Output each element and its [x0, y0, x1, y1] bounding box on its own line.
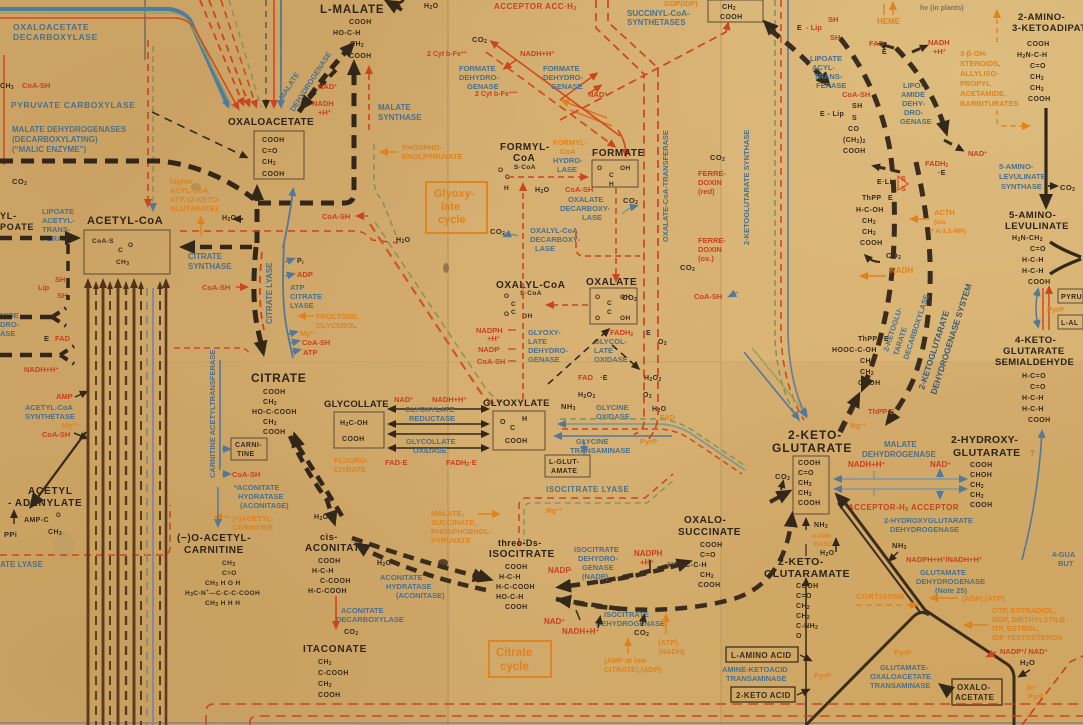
svg-text:FAD·E: FAD·E: [385, 458, 408, 467]
svg-text:AMIDE: AMIDE: [901, 90, 925, 99]
svg-text:higher: higher: [170, 177, 193, 186]
svg-text:H-C-H: H-C-H: [1022, 268, 1044, 275]
svg-text:GENASE: GENASE: [551, 82, 583, 91]
svg-text:CH2: CH2: [798, 480, 812, 488]
svg-text:cycle: cycle: [438, 214, 466, 226]
svg-text:SH: SH: [55, 275, 65, 284]
svg-text:GLUTAMATE-: GLUTAMATE-: [880, 663, 929, 672]
svg-text:DEHYDROGENASE: DEHYDROGENASE: [890, 525, 959, 534]
svg-text:GLYOXYLATE: GLYOXYLATE: [405, 405, 455, 414]
svg-text:O2: O2: [658, 339, 667, 347]
svg-text:CO: CO: [848, 126, 859, 133]
svg-text:COOH: COOH: [970, 502, 993, 509]
svg-text:CH2: CH2: [262, 159, 276, 167]
svg-text:C: C: [607, 300, 612, 307]
svg-text:CH2: CH2: [1030, 74, 1044, 82]
svg-text:C-NH2: C-NH2: [796, 623, 818, 631]
svg-text:CoA-SH: CoA-SH: [322, 212, 350, 221]
svg-text:α-AMI-: α-AMI-: [812, 533, 832, 540]
svg-text:FAD: FAD: [55, 334, 71, 343]
svg-text:COOH: COOH: [970, 462, 993, 469]
svg-text:C=O: C=O: [262, 148, 278, 155]
svg-text:GENASE: GENASE: [900, 117, 932, 126]
svg-text:DRO-: DRO-: [904, 108, 924, 117]
svg-text:SYNTHASE: SYNTHASE: [188, 262, 232, 271]
svg-text:CARNITINE ACETYLTRANSFERASE: CARNITINE ACETYLTRANSFERASE: [208, 350, 217, 478]
svg-text:L-GLUT-: L-GLUT-: [549, 459, 580, 466]
svg-text:2-KETOGLUTARATE SYNTHASE: 2-KETOGLUTARATE SYNTHASE: [742, 130, 751, 245]
svg-text:E: E: [797, 25, 802, 32]
svg-text:C: C: [511, 301, 516, 308]
svg-text:GLYCOL-: GLYCOL-: [594, 337, 628, 346]
svg-text:hν (in plants): hν (in plants): [920, 5, 964, 12]
svg-text:TRANSAMINASE: TRANSAMINASE: [870, 681, 930, 690]
svg-text:SUCCINATE: SUCCINATE: [678, 527, 741, 538]
svg-text:late: late: [441, 201, 460, 213]
svg-text:HYDRO-: HYDRO-: [553, 156, 583, 165]
svg-text:NADH: NADH: [312, 99, 334, 108]
svg-text:H2O: H2O: [424, 3, 439, 11]
svg-text:COOH: COOH: [858, 380, 881, 387]
svg-text:Citrate: Citrate: [496, 647, 532, 659]
svg-text:OXALATE-CoA-TRANSFERASE: OXALATE-CoA-TRANSFERASE: [661, 130, 670, 242]
svg-text:COOH: COOH: [262, 171, 285, 178]
svg-text:DOXIN: DOXIN: [698, 178, 722, 187]
svg-text:H2O: H2O: [820, 550, 835, 558]
svg-text:cycle: cycle: [500, 661, 529, 673]
svg-text:COOH: COOH: [796, 583, 819, 590]
svg-text:PyrP: PyrP: [894, 648, 911, 657]
svg-text:FERRE-: FERRE-: [698, 169, 726, 178]
svg-text:BARBITURATES: BARBITURATES: [960, 99, 1019, 108]
svg-text:CoA-SH: CoA-SH: [565, 185, 593, 194]
svg-text:L-AL: L-AL: [1061, 320, 1079, 327]
svg-text:LIPO-: LIPO-: [903, 81, 924, 90]
svg-text:- Lip: - Lip: [806, 23, 822, 32]
svg-text:ASE: ASE: [0, 329, 15, 338]
svg-text:ACONITATE: ACONITATE: [341, 606, 384, 615]
svg-text:2-HYDROXY-: 2-HYDROXY-: [951, 434, 1018, 446]
svg-text:E - Lip: E - Lip: [820, 111, 844, 118]
svg-text:GDP(IDP): GDP(IDP): [664, 0, 698, 8]
svg-text:PYRUVATE: PYRUVATE: [431, 536, 471, 545]
svg-text:ENOLPYRUVATE: ENOLPYRUVATE: [402, 152, 463, 161]
svg-text:ThPP·E: ThPP·E: [868, 407, 895, 416]
svg-text:CH3: CH3: [0, 83, 14, 91]
svg-text:COOH: COOH: [1027, 41, 1050, 48]
svg-text:H2O: H2O: [396, 237, 411, 245]
svg-text:FAD: FAD: [869, 39, 885, 48]
svg-text:AMINE-KETOACID: AMINE-KETOACID: [722, 665, 788, 674]
svg-text:DECARBOXY-: DECARBOXY-: [530, 235, 581, 244]
svg-text:(“MALIC ENZYME”): (“MALIC ENZYME”): [12, 145, 87, 154]
svg-text:(NADP): (NADP): [582, 572, 609, 581]
svg-text:4-KETO-: 4-KETO-: [1015, 335, 1056, 346]
svg-text:AMATE: AMATE: [551, 468, 577, 475]
svg-text:GLUTARATE): GLUTARATE): [170, 204, 218, 213]
svg-text:DEHYDROGENASE: DEHYDROGENASE: [596, 619, 665, 628]
svg-text:LIPOATE: LIPOATE: [42, 207, 74, 216]
svg-text:O: O: [595, 315, 600, 322]
svg-text:CH2: CH2: [263, 399, 277, 407]
svg-text:OXALATE: OXALATE: [586, 277, 637, 288]
svg-text:PPi: PPi: [4, 530, 17, 539]
svg-text:CoA-SH: CoA-SH: [842, 90, 870, 99]
svg-text:cis-: cis-: [320, 532, 338, 542]
svg-text:NADH+H+: NADH+H+: [848, 460, 885, 469]
svg-text:(ox.): (ox.): [698, 254, 714, 263]
svg-text:COOH: COOH: [860, 240, 883, 247]
svg-text:COOH: COOH: [843, 148, 866, 155]
svg-text:2-HYDROXYGLUTARATE: 2-HYDROXYGLUTARATE: [884, 516, 973, 525]
svg-text:(via: (via: [934, 219, 946, 226]
svg-text:LATE: LATE: [594, 346, 613, 355]
svg-text:(AMP at low: (AMP at low: [604, 656, 647, 665]
svg-text:H2N-CH2: H2N-CH2: [1012, 235, 1043, 243]
svg-text:DEHY-: DEHY-: [902, 99, 925, 108]
svg-text:COOH: COOH: [700, 542, 723, 549]
svg-text:COOH: COOH: [1028, 96, 1051, 103]
svg-text:CoA-SH: CoA-SH: [477, 357, 505, 366]
svg-text:CH2: CH2: [798, 490, 812, 498]
svg-text:O: O: [597, 165, 602, 172]
svg-text:(CH2)2: (CH2)2: [843, 137, 866, 145]
svg-text:NADH+H+: NADH+H+: [432, 395, 466, 404]
svg-text:(DECARBOXYLATING): (DECARBOXYLATING): [12, 135, 98, 144]
svg-text:SH: SH: [828, 15, 838, 24]
svg-text:FADH2·E: FADH2·E: [446, 458, 477, 468]
svg-text:*ACONITATE: *ACONITATE: [234, 483, 280, 492]
svg-text:CoA: CoA: [513, 153, 535, 164]
svg-text:3-KETOADIPAT: 3-KETOADIPAT: [1012, 23, 1083, 34]
svg-text:COOH: COOH: [505, 438, 528, 445]
svg-text:DEHYDRO-: DEHYDRO-: [543, 73, 584, 82]
svg-text:ACETAMIDE,: ACETAMIDE,: [960, 89, 1006, 98]
svg-text:CoA-SH: CoA-SH: [694, 292, 722, 301]
svg-text:DEHYDRO-: DEHYDRO-: [528, 346, 569, 355]
svg-text:CH2: CH2: [970, 482, 984, 490]
svg-text:NADH: NADH: [890, 266, 913, 275]
svg-text:ACONITATE: ACONITATE: [305, 543, 367, 554]
svg-text:COOH: COOH: [505, 604, 528, 611]
svg-text:YL-: YL-: [0, 211, 17, 221]
svg-text:O: O: [498, 167, 503, 174]
svg-text:COOH: COOH: [318, 558, 341, 565]
svg-text:2-KETO ACID: 2-KETO ACID: [736, 691, 791, 700]
svg-text:AMP: AMP: [56, 392, 73, 401]
svg-text:GLYCINE: GLYCINE: [596, 403, 629, 412]
svg-text:C=O: C=O: [796, 593, 812, 600]
svg-text:COOH: COOH: [798, 500, 821, 507]
svg-text:OH: OH: [620, 165, 631, 172]
svg-text:3-β-OH-: 3-β-OH-: [960, 49, 988, 58]
svg-text:OXIDASE: OXIDASE: [594, 355, 628, 364]
svg-text:ACCEPTOR-H2 ACCEPTOR: ACCEPTOR-H2 ACCEPTOR: [848, 503, 959, 513]
svg-text:NADP+/ NAD+: NADP+/ NAD+: [1000, 647, 1048, 656]
svg-text:ACONITATE: ACONITATE: [380, 573, 423, 582]
svg-text:OXALOACETATE: OXALOACETATE: [13, 22, 89, 32]
svg-text:O: O: [128, 242, 133, 249]
svg-text:CoA: CoA: [560, 147, 576, 156]
svg-text:SEMIALDEHYDE: SEMIALDEHYDE: [995, 357, 1074, 368]
svg-text:TRANS-: TRANS-: [42, 225, 71, 234]
svg-text:C-COOH: C-COOH: [320, 578, 351, 585]
svg-text:SH: SH: [830, 33, 840, 42]
svg-text:GLYOXYLATE: GLYOXYLATE: [483, 398, 550, 409]
svg-text:CH3: CH3: [48, 529, 62, 537]
svg-text:CH2: CH2: [860, 369, 874, 377]
svg-text:FRUCTOSE,: FRUCTOSE,: [316, 312, 359, 321]
svg-text:GLYCEROL: GLYCEROL: [316, 321, 357, 330]
svg-text:MALATE,: MALATE,: [431, 509, 464, 518]
svg-text:LASE: LASE: [557, 165, 577, 174]
svg-text:COOH: COOH: [698, 582, 721, 589]
svg-text:(ADP),(ATP): (ADP),(ATP): [962, 594, 1005, 603]
svg-text:H2N-C-H: H2N-C-H: [1017, 52, 1047, 60]
svg-text:·E: ·E: [938, 170, 946, 177]
svg-text:DEHYDROGENASE: DEHYDROGENASE: [862, 450, 936, 459]
svg-text:CARNITINE: CARNITINE: [184, 545, 244, 556]
svg-text:PYRUVATE CARBOXYLASE: PYRUVATE CARBOXYLASE: [11, 100, 136, 110]
svg-text:ISOCITRATE LYASE: ISOCITRATE LYASE: [546, 485, 629, 494]
svg-text:COOH: COOH: [349, 53, 372, 60]
svg-text:ACCEPTOR ACC·H2: ACCEPTOR ACC·H2: [494, 2, 577, 12]
svg-text:FORMATE: FORMATE: [592, 148, 645, 159]
svg-text:NADH+H+: NADH+H+: [520, 49, 554, 58]
svg-text:CARNI-: CARNI-: [235, 442, 262, 449]
svg-text:LIPOATE: LIPOATE: [810, 54, 842, 63]
svg-text:COOH: COOH: [1028, 417, 1051, 424]
svg-text:(−)O-ACETYL-: (−)O-ACETYL-: [177, 533, 251, 544]
svg-text:CARNITINE: CARNITINE: [232, 523, 273, 532]
svg-text:C: C: [118, 247, 123, 254]
svg-text:GLYOXY-: GLYOXY-: [528, 328, 561, 337]
svg-text:CoA-SH: CoA-SH: [302, 338, 330, 347]
svg-text:PHOSPHOENOL-: PHOSPHOENOL-: [431, 527, 492, 536]
svg-text:LATE: LATE: [528, 337, 547, 346]
svg-text:GLYCOLLATE: GLYCOLLATE: [324, 399, 389, 410]
svg-text:OXIDASE: OXIDASE: [413, 446, 447, 455]
svg-text:CoA-SH: CoA-SH: [202, 283, 230, 292]
svg-text:CH3: CH3: [116, 259, 129, 267]
svg-text:C=O: C=O: [700, 552, 716, 559]
svg-text:ACYL-CoA,: ACYL-CoA,: [170, 186, 210, 195]
svg-text:OXALO-: OXALO-: [684, 515, 727, 526]
svg-text:LASE: LASE: [535, 244, 555, 253]
svg-text:COOH: COOH: [318, 692, 341, 699]
svg-text:NADPH: NADPH: [634, 549, 663, 558]
svg-text:SH: SH: [57, 291, 67, 300]
svg-text:DEHYDRO-: DEHYDRO-: [459, 73, 500, 82]
svg-text:SYNTHETASE: SYNTHETASE: [25, 412, 75, 421]
svg-text:DECARBOXYLASE: DECARBOXYLASE: [13, 32, 98, 42]
svg-text:DECARBOXYLASE: DECARBOXYLASE: [336, 615, 404, 624]
svg-text:OXALOACETATE: OXALOACETATE: [228, 117, 314, 128]
svg-text:NADH: NADH: [928, 38, 950, 47]
svg-text:H-C-H: H-C-H: [312, 568, 334, 575]
svg-text:GENASE: GENASE: [582, 563, 614, 572]
svg-text:OXALO-: OXALO-: [957, 683, 991, 692]
svg-text:MALATE: MALATE: [378, 103, 411, 112]
svg-text:COOH: COOH: [262, 137, 285, 144]
svg-text:CH2: CH2: [350, 41, 364, 49]
svg-text:(ACONITASE): (ACONITASE): [396, 591, 445, 600]
svg-text:FERRE-: FERRE-: [698, 236, 726, 245]
svg-text:COOH: COOH: [263, 389, 286, 396]
svg-text:O: O: [504, 293, 509, 300]
svg-text:ISOCITRATE: ISOCITRATE: [604, 610, 649, 619]
svg-text:O: O: [595, 294, 600, 301]
svg-text:COOH: COOH: [342, 436, 365, 443]
svg-text:NADH+H+: NADH+H+: [24, 365, 58, 374]
svg-text:H: H: [504, 185, 509, 192]
svg-text:(ATP),: (ATP),: [658, 638, 680, 647]
svg-text:TRANS-: TRANS-: [814, 72, 843, 81]
svg-text:H: H: [609, 181, 614, 188]
svg-text:S·CoA: S·CoA: [514, 164, 536, 171]
svg-text:2-AMINO-: 2-AMINO-: [1018, 12, 1065, 23]
svg-text:CH2: CH2: [796, 613, 810, 621]
svg-text:ALLYLISO-: ALLYLISO-: [960, 69, 999, 78]
svg-text:ADP: ADP: [297, 270, 313, 279]
svg-text:SYNTHASE: SYNTHASE: [1001, 182, 1042, 191]
svg-text:ThPP: ThPP: [862, 195, 882, 202]
svg-text:ACETYL-: ACETYL-: [42, 216, 75, 225]
svg-text:DOXIN: DOXIN: [698, 245, 722, 254]
svg-text:5-AMINO-: 5-AMINO-: [1009, 210, 1056, 221]
svg-text:GENASE: GENASE: [528, 355, 560, 364]
svg-text:COOH: COOH: [798, 460, 821, 467]
svg-text:H-C-H: H-C-H: [1022, 406, 1044, 413]
svg-text:E·Lip: E·Lip: [877, 179, 897, 186]
svg-text:CO2: CO2: [344, 629, 359, 637]
svg-text:O: O: [504, 311, 509, 318]
svg-text:TRANSAMINASE: TRANSAMINASE: [570, 446, 630, 455]
svg-text:ITACONATE: ITACONATE: [303, 644, 367, 655]
svg-text:CH2: CH2: [860, 358, 874, 366]
svg-text:LEVULINATE: LEVULINATE: [999, 172, 1046, 181]
svg-text:ATP, (2-KETO-: ATP, (2-KETO-: [170, 195, 221, 204]
svg-text:ACTH: ACTH: [934, 208, 955, 217]
svg-text:OXALYL-CoA: OXALYL-CoA: [530, 226, 578, 235]
svg-text:FAD: FAD: [578, 373, 594, 382]
svg-text:CITRATE LYASE: CITRATE LYASE: [265, 262, 274, 324]
svg-text:O: O: [56, 513, 61, 519]
svg-text:HYDRATASE: HYDRATASE: [238, 492, 284, 501]
svg-text:GLYCOLLATE: GLYCOLLATE: [406, 437, 456, 446]
svg-text:NADP-: NADP-: [548, 566, 573, 575]
svg-text:FAD: FAD: [660, 413, 676, 422]
svg-text:CH2: CH2: [1030, 85, 1044, 93]
svg-text:CH3: CH3: [222, 560, 235, 568]
svg-text:ISOCITRATE: ISOCITRATE: [489, 549, 555, 560]
svg-text:Glyoxy-: Glyoxy-: [434, 188, 475, 200]
svg-text:CoA-SH: CoA-SH: [22, 81, 50, 90]
svg-text:IDP TESTOSTERON: IDP TESTOSTERON: [992, 633, 1063, 642]
svg-text:PROPYL: PROPYL: [960, 79, 991, 88]
svg-text:ACETATE: ACETATE: [955, 693, 995, 702]
svg-text:NH3: NH3: [814, 522, 828, 530]
svg-text:COOH: COOH: [720, 14, 743, 21]
svg-text:C: C: [609, 172, 614, 179]
svg-text:O: O: [796, 633, 802, 640]
svg-text:DEHYDRO-: DEHYDRO-: [578, 554, 619, 563]
svg-text:Lip: Lip: [38, 283, 50, 292]
svg-text:GDP, DIETHYLSTILB: GDP, DIETHYLSTILB: [992, 615, 1066, 624]
svg-text:CITRATE: CITRATE: [188, 252, 223, 261]
svg-text:S: S: [852, 115, 857, 122]
svg-text:COOH: COOH: [505, 564, 528, 571]
svg-text:LYASE: LYASE: [290, 301, 314, 310]
svg-text:CH2: CH2: [862, 229, 876, 237]
svg-text:4-GUA: 4-GUA: [1052, 550, 1076, 559]
svg-text:HYDRATASE: HYDRATASE: [386, 582, 432, 591]
svg-text:OH: OH: [620, 315, 631, 322]
svg-text:ATP: ATP: [303, 348, 317, 357]
svg-text:HO-C-H: HO-C-H: [496, 594, 524, 601]
svg-text:DECARBOXY-: DECARBOXY-: [560, 204, 611, 213]
svg-text:CH3 H H H: CH3 H H H: [205, 600, 240, 608]
svg-text:OXALATE: OXALATE: [568, 195, 603, 204]
svg-text:PHOSPHO-: PHOSPHO-: [402, 143, 443, 152]
svg-text:PYRU: PYRU: [1061, 294, 1082, 301]
svg-text:GLUTARATE: GLUTARATE: [772, 441, 852, 455]
svg-text:ACYL-: ACYL-: [812, 63, 835, 72]
svg-text:GLUTAMATE: GLUTAMATE: [920, 568, 966, 577]
svg-text:- ADENYLATE: - ADENYLATE: [8, 498, 83, 509]
svg-text:TRANSAMINASE: TRANSAMINASE: [726, 674, 786, 683]
svg-text:ACETYL: ACETYL: [28, 486, 73, 497]
svg-text:5-AMINO-: 5-AMINO-: [999, 162, 1034, 171]
svg-text:CORTISONE: CORTISONE: [856, 592, 905, 601]
svg-text:CH2: CH2: [318, 659, 332, 667]
svg-text:E: E: [882, 49, 887, 56]
svg-text:REDUCTASE: REDUCTASE: [409, 414, 455, 423]
svg-text:H2O: H2O: [377, 560, 392, 568]
svg-text:CoA-SH: CoA-SH: [42, 430, 70, 439]
svg-text:COOH: COOH: [1028, 279, 1051, 286]
svg-text:TINE: TINE: [237, 451, 255, 458]
svg-text:E: E: [646, 330, 651, 337]
svg-text:? A-3,5-MP): ? A-3,5-MP): [930, 228, 966, 235]
svg-text:SYNTHETASES: SYNTHETASES: [627, 18, 686, 27]
svg-text:H2O: H2O: [222, 215, 237, 223]
svg-text:2-KETO-: 2-KETO-: [778, 556, 824, 568]
svg-text:CHOH: CHOH: [970, 472, 992, 479]
svg-text:GLUTARATE: GLUTARATE: [1003, 346, 1065, 357]
svg-text:(+)ACETYL-: (+)ACETYL-: [232, 514, 274, 523]
svg-text:H-C-H: H-C-H: [1022, 395, 1044, 402]
svg-text:H-C-OH: H-C-OH: [856, 207, 884, 214]
svg-text:DRO-: DRO-: [0, 320, 20, 329]
svg-text:POATE: POATE: [0, 222, 34, 232]
svg-text:PyrP: PyrP: [814, 671, 831, 680]
svg-text:GLYCINE: GLYCINE: [576, 437, 609, 446]
svg-text:GTP, ESTRADIOL,: GTP, ESTRADIOL,: [992, 606, 1056, 615]
svg-text:(NADH): (NADH): [658, 647, 685, 656]
svg-text:COOH: COOH: [263, 429, 286, 436]
svg-text:HOOC-C-OH: HOOC-C-OH: [832, 347, 877, 354]
svg-text:GENASE: GENASE: [467, 82, 499, 91]
svg-text:GLUTARATE: GLUTARATE: [953, 447, 1021, 459]
svg-text:CoA-S: CoA-S: [92, 238, 114, 245]
svg-text:NADP-: NADP-: [478, 345, 501, 354]
svg-text:CITRATE: CITRATE: [290, 292, 322, 301]
svg-text:ATE LYASE: ATE LYASE: [0, 560, 43, 569]
svg-text:ThPP: ThPP: [858, 336, 878, 343]
svg-text:FORMATE: FORMATE: [543, 64, 580, 73]
svg-text:2 Cyt b-Fe++: 2 Cyt b-Fe++: [427, 50, 467, 58]
